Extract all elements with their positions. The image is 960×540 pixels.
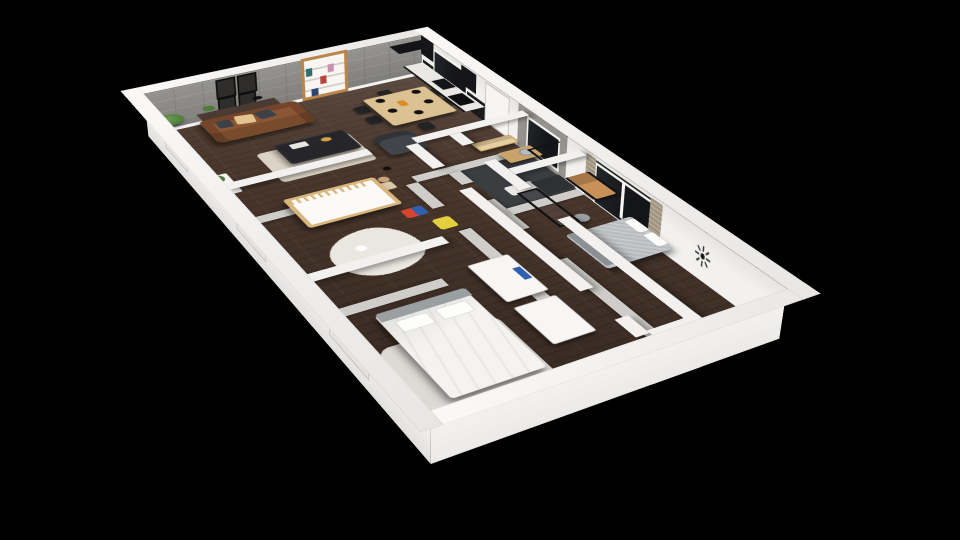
book bbox=[320, 75, 326, 84]
starburst-clock-icon bbox=[692, 238, 713, 275]
render-canvas bbox=[0, 0, 960, 540]
book bbox=[327, 63, 333, 72]
floorplan-scene bbox=[148, 75, 779, 464]
book bbox=[306, 68, 313, 77]
